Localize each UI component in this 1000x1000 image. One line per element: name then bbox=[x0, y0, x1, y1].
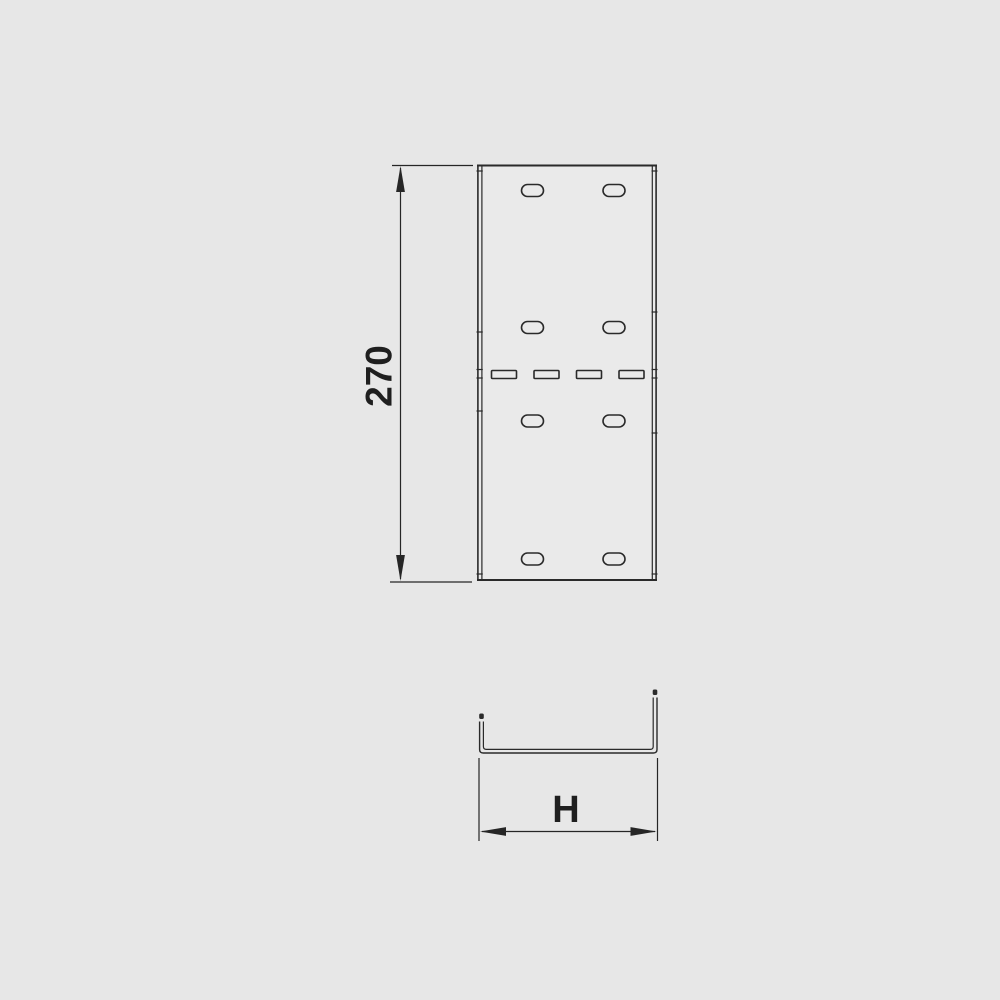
arrowhead-up-icon bbox=[396, 166, 405, 192]
oval-hole bbox=[522, 322, 544, 334]
arrowhead-down-icon bbox=[396, 555, 405, 581]
oval-hole bbox=[603, 322, 625, 334]
dimension-label-H: H bbox=[552, 789, 579, 831]
rung-slot bbox=[534, 371, 559, 379]
rung-slot bbox=[492, 371, 517, 379]
left-wall-top-cap bbox=[479, 714, 484, 720]
arrowhead-right-icon bbox=[631, 827, 657, 836]
oval-hole bbox=[603, 415, 625, 427]
height-dimension: 270 bbox=[358, 166, 473, 583]
oval-hole bbox=[603, 553, 625, 565]
right-wall-top-cap bbox=[653, 690, 658, 696]
plan-view bbox=[477, 165, 658, 580]
oval-hole bbox=[522, 415, 544, 427]
oval-hole bbox=[522, 185, 544, 197]
oval-hole bbox=[522, 553, 544, 565]
dimension-label-270: 270 bbox=[358, 345, 399, 407]
rung-slot bbox=[577, 371, 602, 379]
rung-slot bbox=[619, 371, 644, 379]
profile-view bbox=[479, 690, 657, 754]
width-dimension: H bbox=[479, 758, 658, 841]
technical-drawing: 270 H bbox=[0, 0, 1000, 1000]
channel-outer-contour bbox=[480, 698, 657, 754]
channel-inner-contour bbox=[483, 698, 653, 750]
arrowhead-left-icon bbox=[480, 827, 506, 836]
drawing-canvas: 270 H bbox=[0, 0, 1000, 1000]
oval-hole bbox=[603, 185, 625, 197]
